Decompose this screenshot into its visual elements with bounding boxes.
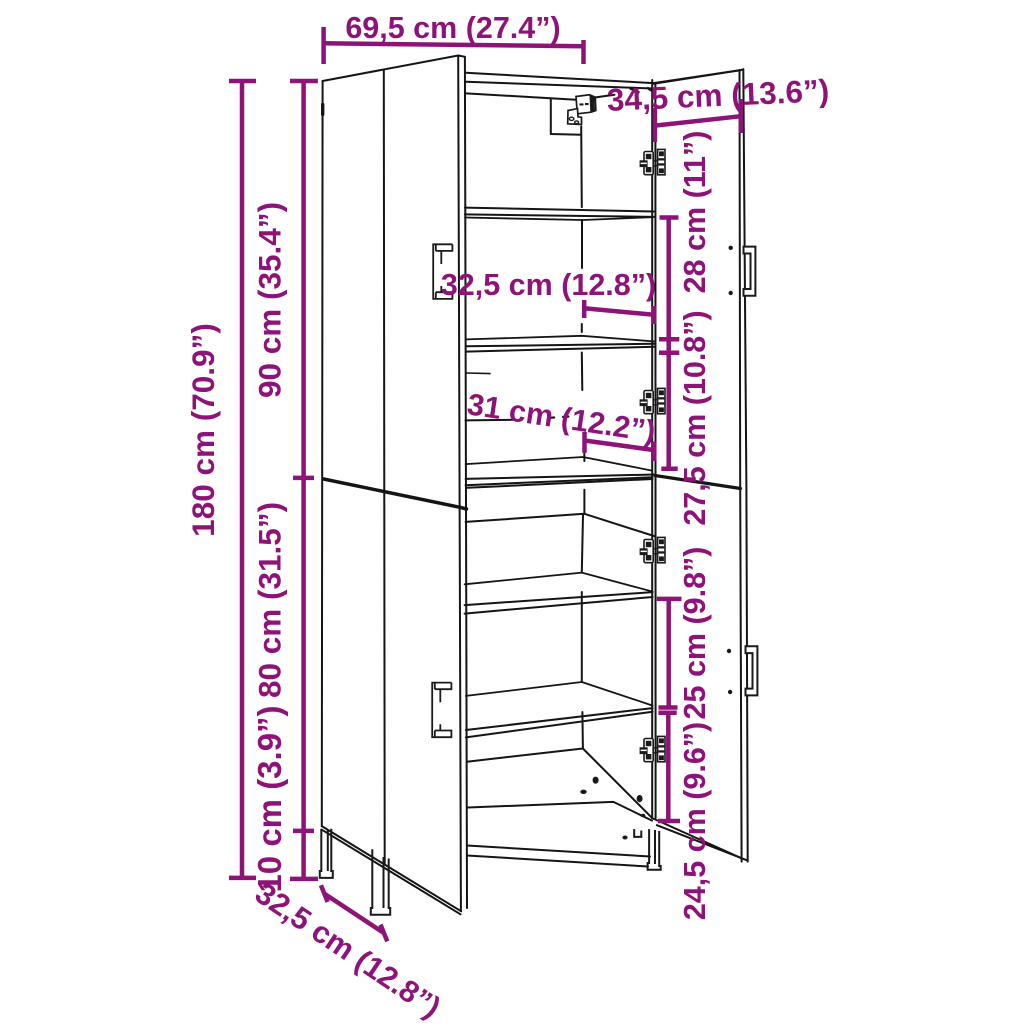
svg-text:90 cm (35.4”): 90 cm (35.4”)	[252, 202, 288, 398]
svg-text:69,5 cm (27.4”): 69,5 cm (27.4”)	[345, 11, 560, 45]
svg-text:27,5 cm (10.8”): 27,5 cm (10.8”)	[678, 310, 712, 525]
svg-text:25 cm (9.8”): 25 cm (9.8”)	[678, 547, 712, 720]
svg-text:28 cm (11”): 28 cm (11”)	[678, 131, 712, 294]
svg-text:24,5 cm (9.6”): 24,5 cm (9.6”)	[678, 722, 712, 920]
svg-text:10 cm (3.9”): 10 cm (3.9”)	[251, 705, 288, 892]
svg-text:32,5 cm (12.8”): 32,5 cm (12.8”)	[441, 268, 656, 302]
svg-text:180 cm (70.9”): 180 cm (70.9”)	[185, 323, 221, 537]
svg-text:80 cm (31.5”): 80 cm (31.5”)	[252, 502, 288, 698]
